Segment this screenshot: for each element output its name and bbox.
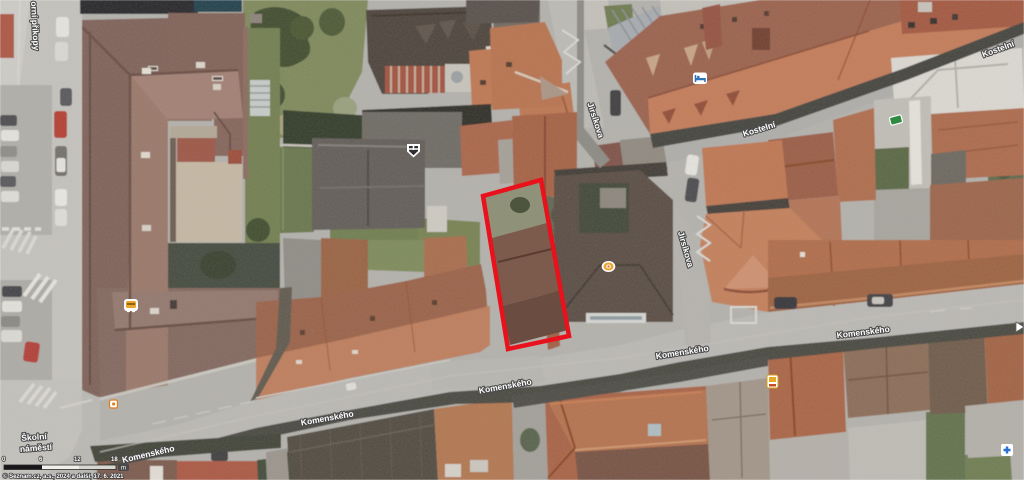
svg-text:12: 12 — [74, 457, 81, 463]
svg-text:18: 18 — [111, 457, 118, 463]
svg-text:© Seznam.cz, a.s., 2024 a dalš: © Seznam.cz, a.s., 2024 a další, 17. 6. … — [3, 473, 124, 480]
svg-text:m: m — [121, 466, 126, 472]
svg-text:Školní: Školní — [21, 430, 48, 443]
